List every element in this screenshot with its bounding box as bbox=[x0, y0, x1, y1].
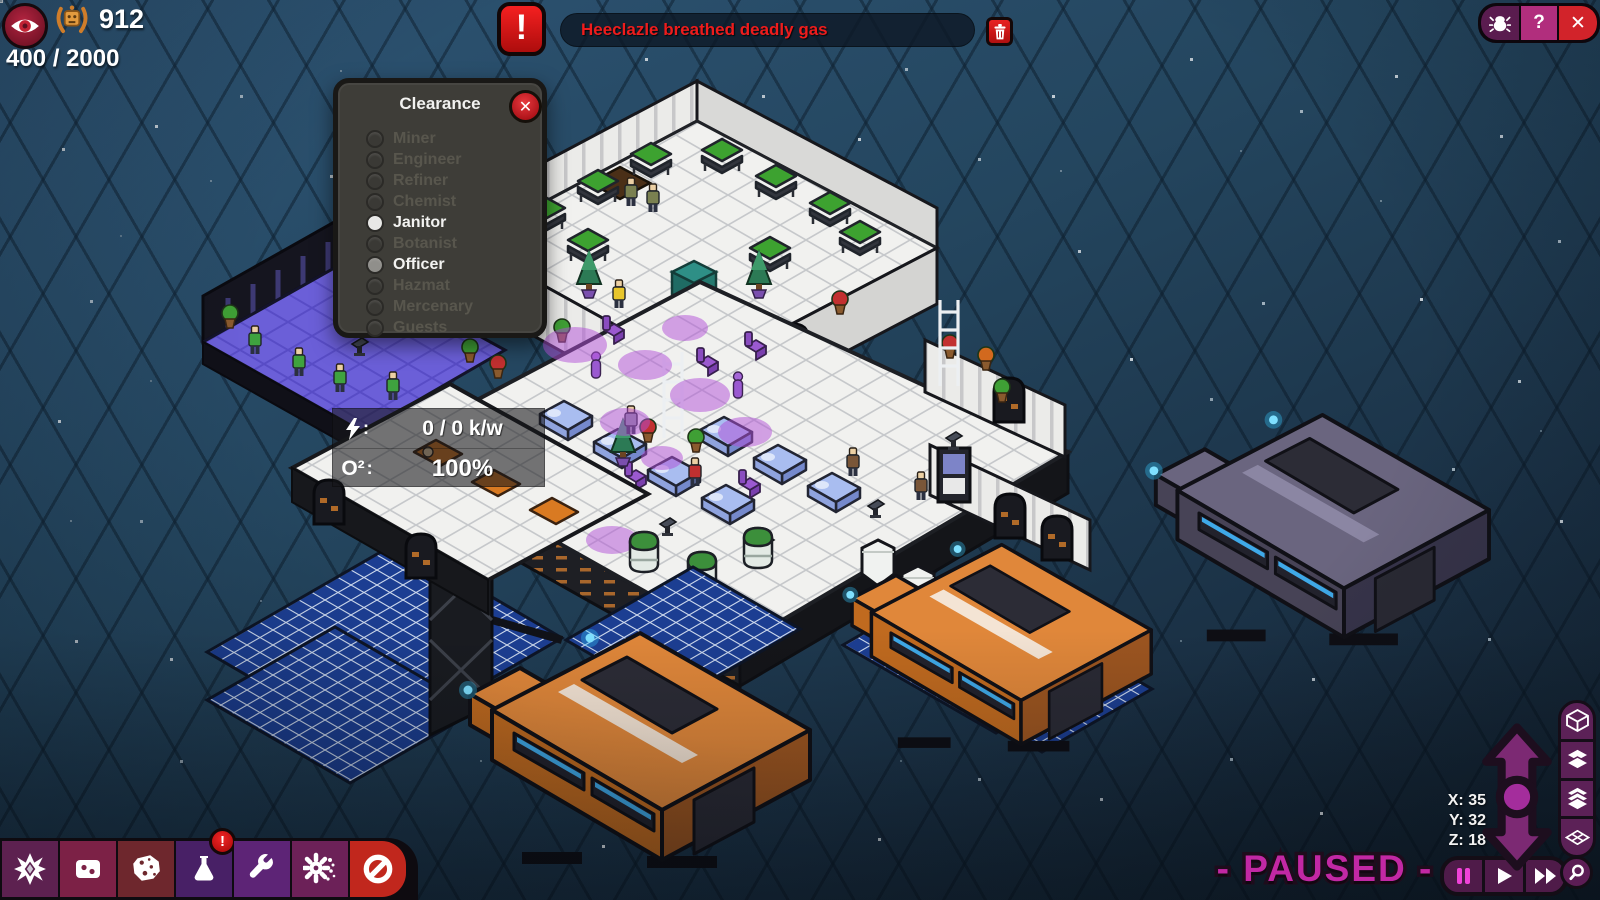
radio-icon bbox=[366, 319, 384, 337]
clearance-item-miner[interactable]: Miner bbox=[338, 128, 542, 149]
coord-z: Z: 18 bbox=[1408, 831, 1486, 851]
trash-icon bbox=[992, 23, 1008, 41]
clearance-item-mercenary[interactable]: Mercenary bbox=[338, 296, 542, 317]
bug-report-button[interactable] bbox=[1481, 6, 1519, 40]
radio-icon bbox=[366, 151, 384, 169]
eye-icon bbox=[9, 10, 41, 42]
z-knob bbox=[1500, 780, 1534, 814]
storage-capacity: 400 / 2000 bbox=[6, 45, 119, 73]
flask-icon bbox=[188, 853, 220, 885]
layers-stack-icon bbox=[1566, 787, 1589, 810]
merit-icon bbox=[53, 1, 91, 39]
close-button[interactable]: ✕ bbox=[1559, 6, 1597, 40]
clearance-item-officer[interactable]: Officer bbox=[338, 254, 542, 275]
layer-wireframe-icon bbox=[1565, 830, 1590, 845]
gear-splat-icon bbox=[303, 852, 337, 886]
radio-icon bbox=[366, 298, 384, 316]
alert-message[interactable]: Heeclazle breathed deadly gas bbox=[560, 13, 975, 47]
alert-dismiss-button[interactable] bbox=[986, 17, 1013, 46]
merit-score: 912 bbox=[99, 4, 144, 35]
bug-icon bbox=[1489, 13, 1511, 33]
view-cube-button[interactable] bbox=[1561, 703, 1593, 739]
toolbar-button-mining[interactable] bbox=[118, 841, 174, 897]
view-layer-controls bbox=[1558, 700, 1596, 858]
room-status-tooltip: : 0 / 0 k/w O² : 100% bbox=[332, 408, 545, 487]
clearance-item-refiner[interactable]: Refiner bbox=[338, 170, 542, 191]
vending-machine bbox=[938, 448, 970, 502]
clearance-panel: Clearance ✕ Miner Engineer Refiner Chemi… bbox=[333, 78, 547, 338]
search-button[interactable] bbox=[1560, 856, 1593, 889]
build-toolbar: ! bbox=[0, 838, 418, 900]
oxygen-value: 100% bbox=[381, 455, 544, 483]
radio-icon bbox=[366, 130, 384, 148]
view-layer-stack-button[interactable] bbox=[1561, 778, 1593, 817]
magnifier-icon bbox=[1568, 864, 1585, 881]
compass-star-icon bbox=[13, 852, 47, 886]
window-controls: ? ✕ bbox=[1478, 3, 1600, 43]
wrench-icon bbox=[246, 853, 278, 885]
clearance-item-botanist[interactable]: Botanist bbox=[338, 233, 542, 254]
close-icon: ✕ bbox=[519, 97, 532, 117]
clearance-item-janitor[interactable]: Janitor bbox=[338, 212, 542, 233]
toolbar-button-repair[interactable] bbox=[234, 841, 290, 897]
radio-icon bbox=[366, 193, 384, 211]
clearance-list: Miner Engineer Refiner Chemist Janitor B… bbox=[338, 128, 542, 338]
clearance-item-engineer[interactable]: Engineer bbox=[338, 149, 542, 170]
purple-ship[interactable] bbox=[1145, 411, 1489, 645]
clearance-item-chemist[interactable]: Chemist bbox=[338, 191, 542, 212]
game-world[interactable] bbox=[0, 0, 1600, 900]
toolbar-button-salvage[interactable] bbox=[292, 841, 348, 897]
oxygen-row: O² : 100% bbox=[333, 448, 544, 488]
help-button[interactable]: ? bbox=[1521, 6, 1557, 40]
room-tile-icon bbox=[72, 853, 104, 885]
paused-indicator: - PAUSED - bbox=[1205, 848, 1445, 890]
alert-exclamation-icon[interactable]: ! bbox=[497, 2, 546, 56]
cube-wireframe-icon bbox=[1566, 709, 1589, 732]
radio-icon bbox=[366, 256, 384, 274]
power-row: : 0 / 0 k/w bbox=[333, 409, 544, 448]
power-value: 0 / 0 k/w bbox=[381, 417, 544, 441]
coord-x: X: 35 bbox=[1408, 791, 1486, 811]
radio-icon bbox=[366, 277, 384, 295]
toolbar-button-research[interactable]: ! bbox=[176, 841, 232, 897]
radio-icon bbox=[366, 214, 384, 232]
view-layers-button[interactable] bbox=[1561, 739, 1593, 778]
pause-icon bbox=[1456, 868, 1471, 884]
coord-y: Y: 32 bbox=[1408, 811, 1486, 831]
forbidden-icon bbox=[361, 852, 395, 886]
visibility-toggle-button[interactable] bbox=[2, 3, 48, 49]
clearance-item-hazmat[interactable]: Hazmat bbox=[338, 275, 542, 296]
oxygen-label: O² bbox=[341, 457, 364, 481]
radio-icon bbox=[366, 172, 384, 190]
toolbar-button-navigation[interactable] bbox=[2, 841, 58, 897]
help-icon: ? bbox=[1533, 12, 1545, 34]
layers-filled-icon bbox=[1566, 749, 1589, 770]
close-icon: ✕ bbox=[1570, 12, 1586, 35]
view-flat-button[interactable] bbox=[1561, 816, 1593, 855]
clearance-close-button[interactable]: ✕ bbox=[509, 90, 542, 123]
toolbar-button-forbid[interactable] bbox=[350, 841, 406, 897]
clearance-item-guests[interactable]: Guests bbox=[338, 317, 542, 338]
radio-icon bbox=[366, 235, 384, 253]
research-alert-badge: ! bbox=[209, 828, 236, 855]
z-level-control[interactable] bbox=[1477, 722, 1557, 877]
cursor-coordinates: X: 35 Y: 32 Z: 18 bbox=[1408, 791, 1486, 851]
toolbar-button-rooms[interactable] bbox=[60, 841, 116, 897]
asteroid-icon bbox=[129, 852, 163, 886]
lightning-icon bbox=[345, 418, 361, 440]
